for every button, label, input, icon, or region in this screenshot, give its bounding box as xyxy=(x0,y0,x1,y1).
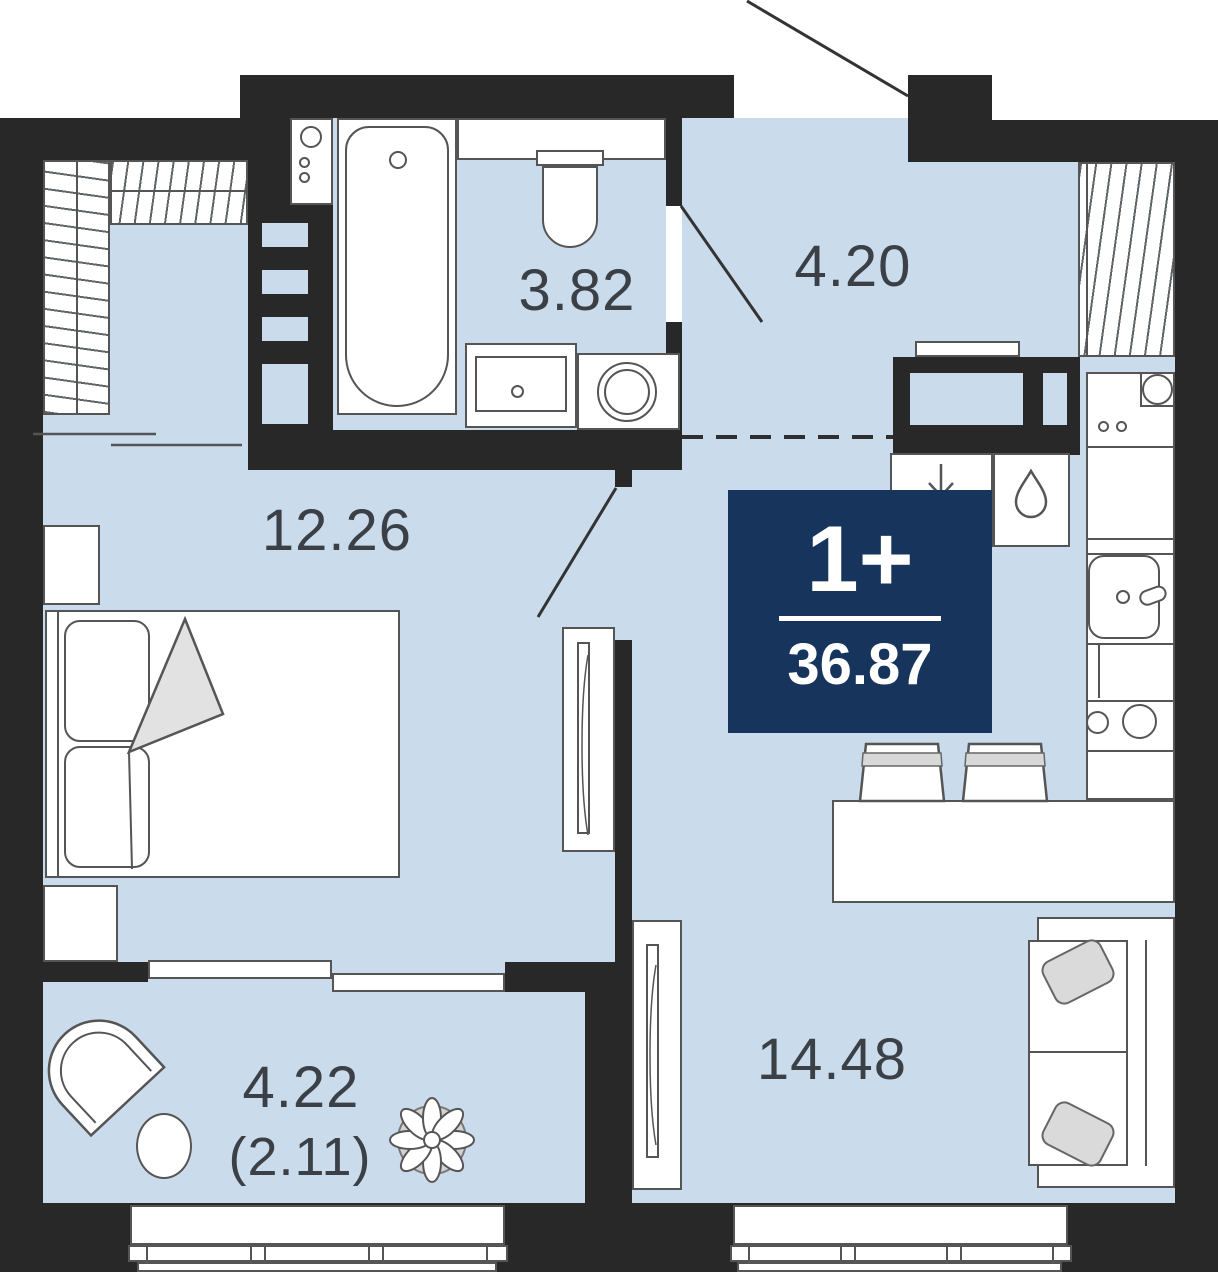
window-mullion xyxy=(854,1245,856,1262)
balcony-window-sill-outer xyxy=(137,1262,497,1272)
shaft-niche xyxy=(262,364,308,424)
sofa-seat xyxy=(1028,940,1128,1166)
living-window-sill-outer xyxy=(737,1262,1062,1272)
bathtub-drain xyxy=(389,151,407,169)
bar-counter xyxy=(832,800,1175,903)
bedroom-area-label: 12.26 xyxy=(207,502,467,560)
kitchen-knob xyxy=(1116,421,1127,432)
balcony-window-frame xyxy=(128,1245,508,1262)
kitchen-knob xyxy=(1098,421,1109,432)
nightstand xyxy=(43,525,100,605)
entry-wall-block xyxy=(908,75,992,162)
living-window-sill-inner xyxy=(733,1205,1068,1245)
hob-burner-large xyxy=(1122,704,1157,739)
kitchen-living-area-label: 14.48 xyxy=(702,1031,962,1089)
outer-wall-right xyxy=(1175,120,1218,1272)
window-mullion xyxy=(960,1245,962,1262)
balcony-wall-stub-left xyxy=(43,962,148,982)
apartment-badge: 1+ 36.87 xyxy=(728,490,992,733)
outer-wall-top-left xyxy=(0,118,250,160)
hall-wardrobe-edge xyxy=(1086,162,1088,357)
entry-closet-rail xyxy=(76,162,78,413)
shaft-niche xyxy=(262,270,308,294)
hall-wardrobe xyxy=(1078,162,1175,357)
entry-closet-horizontal xyxy=(110,160,248,225)
kitchen-counter-divider xyxy=(1086,750,1175,752)
entry-closet-rail xyxy=(112,190,246,192)
hob-burner-small xyxy=(1086,711,1109,734)
window-mullion xyxy=(382,1245,384,1262)
toilet-tank xyxy=(536,150,604,166)
balcony-door-window-frame xyxy=(332,973,505,992)
shaft-niche xyxy=(262,223,308,247)
window-mullion xyxy=(368,1245,370,1262)
entrance-door-leaf xyxy=(747,1,908,96)
kitchen-counter-divider xyxy=(1086,700,1175,702)
nightstand xyxy=(43,885,118,962)
window-mullion xyxy=(946,1245,948,1262)
shaft-niche xyxy=(262,317,308,341)
water-heater-dial xyxy=(300,126,322,148)
bed-pillow xyxy=(64,620,150,742)
kitchen-counter-divider xyxy=(1086,538,1175,540)
water-heater-knob xyxy=(299,172,310,183)
kitchen-shaft-niche xyxy=(910,373,1023,425)
living-window-frame xyxy=(730,1245,1072,1262)
badge-total-area: 36.87 xyxy=(728,636,992,694)
hallway-floor-upper xyxy=(682,118,908,162)
kitchen-corner-burner xyxy=(1142,374,1173,405)
tv-screen-living xyxy=(646,944,659,1158)
bathroom-right-wall-upper xyxy=(666,118,682,206)
bedroom-door-stub xyxy=(615,440,632,487)
bedroom-partition-wall xyxy=(615,640,632,963)
window-mullion xyxy=(250,1245,252,1262)
window-mullion xyxy=(146,1245,148,1262)
outer-wall-top-middle xyxy=(240,75,734,118)
kitchen-counter-divider xyxy=(1086,446,1175,448)
bedroom-door-opening-floor xyxy=(615,487,632,640)
bed-pillow xyxy=(64,746,150,868)
tv-screen-bedroom xyxy=(577,642,590,834)
balcony-window-sill-inner xyxy=(130,1205,505,1245)
bathroom-sink xyxy=(475,356,567,412)
badge-rooms-label: 1+ xyxy=(728,512,992,606)
kitchen-shaft-niche xyxy=(1043,373,1067,425)
outer-wall-left xyxy=(0,118,43,1272)
kitchen-cabinet-line xyxy=(1098,645,1100,698)
balcony-door-window-frame xyxy=(148,960,332,979)
balcony-reduced-area-label: (2.11) xyxy=(170,1130,430,1184)
bathroom-area-label: 3.82 xyxy=(447,262,707,320)
window-mullion xyxy=(486,1245,488,1262)
water-heater-knob xyxy=(299,157,310,168)
washing-machine-drum xyxy=(604,369,650,415)
kitchen-sink-drain xyxy=(1116,590,1130,604)
badge-divider xyxy=(779,616,941,621)
sofa-seat-divider xyxy=(1028,1051,1128,1053)
sofa-backrest-line xyxy=(1145,940,1147,1166)
window-mullion xyxy=(748,1245,750,1262)
hall-shelf xyxy=(915,341,1020,357)
window-mullion xyxy=(264,1245,266,1262)
water-riser-cabinet xyxy=(993,453,1070,547)
toilet-bowl xyxy=(542,166,598,248)
bathroom-sink-drain xyxy=(511,385,524,398)
floor-plan: 3.82 4.20 12.26 14.48 4.22 (2.11) 1+ 36.… xyxy=(0,0,1218,1272)
balcony-area-label: 4.22 xyxy=(171,1059,431,1117)
window-mullion xyxy=(1052,1245,1054,1262)
balcony-partition-wall xyxy=(585,962,632,1203)
sofa-backrest-line xyxy=(1126,940,1128,1166)
window-mullion xyxy=(840,1245,842,1262)
hallway-area-label: 4.20 xyxy=(723,238,983,296)
bed-headboard-line xyxy=(57,612,59,876)
